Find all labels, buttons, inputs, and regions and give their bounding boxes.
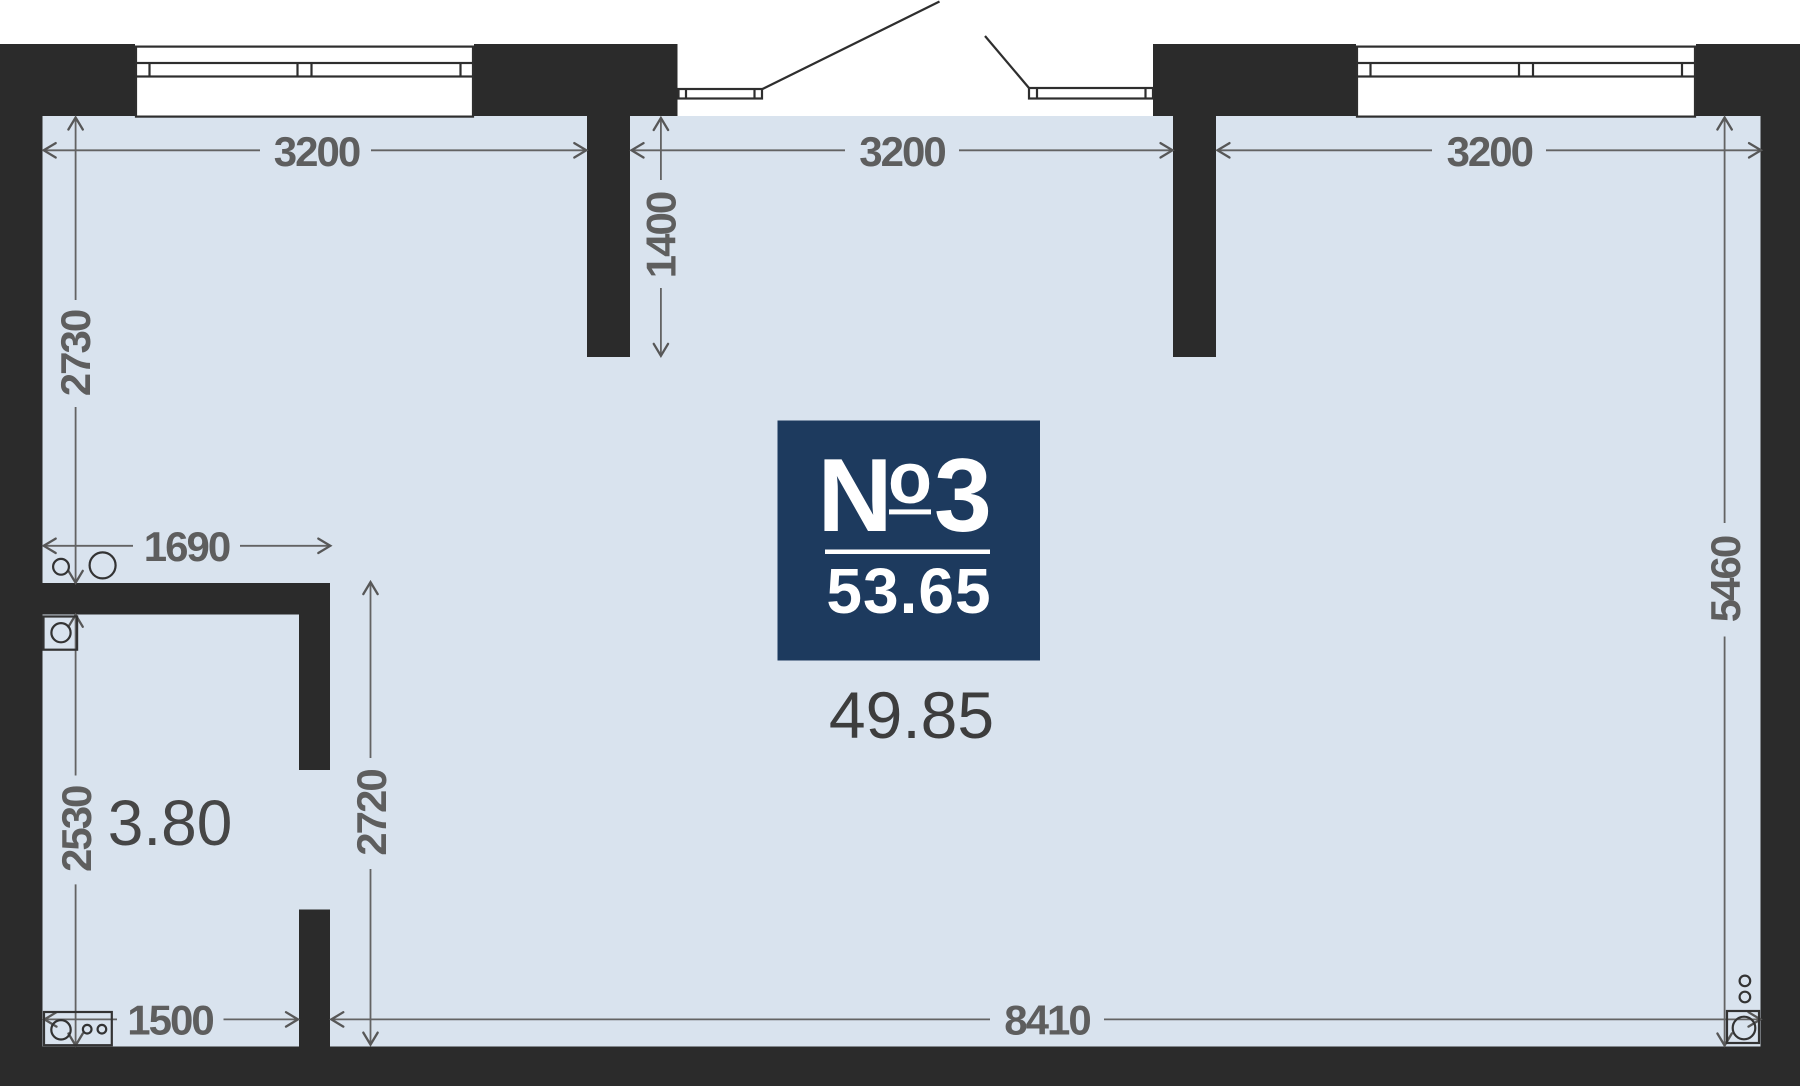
svg-text:1500: 1500 <box>127 997 213 1044</box>
svg-text:1400: 1400 <box>638 192 685 278</box>
svg-text:1690: 1690 <box>144 523 230 570</box>
svg-text:3.80: 3.80 <box>108 787 233 859</box>
svg-text:8410: 8410 <box>1004 997 1090 1044</box>
svg-text:5460: 5460 <box>1702 536 1749 622</box>
svg-text:N: N <box>818 438 893 554</box>
svg-text:53.65: 53.65 <box>826 555 991 627</box>
svg-text:3200: 3200 <box>1447 128 1533 175</box>
svg-text:o: o <box>888 439 932 519</box>
svg-text:2720: 2720 <box>348 770 395 856</box>
svg-text:3200: 3200 <box>859 128 945 175</box>
svg-text:2730: 2730 <box>52 310 99 396</box>
svg-text:2530: 2530 <box>53 786 100 872</box>
svg-text:3200: 3200 <box>274 128 360 175</box>
svg-text:49.85: 49.85 <box>829 678 994 752</box>
svg-text:3: 3 <box>934 438 992 554</box>
